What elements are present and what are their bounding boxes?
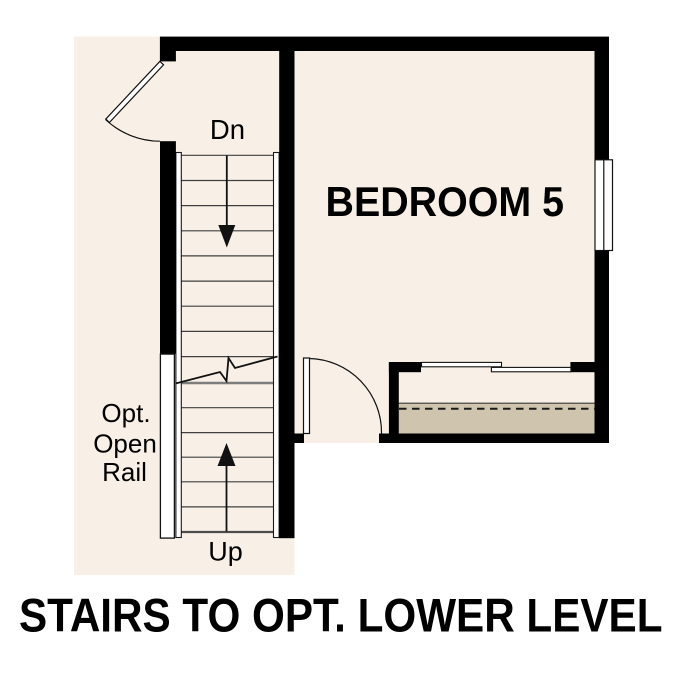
- svg-text:Opt.: Opt.: [101, 398, 150, 428]
- svg-text:STAIRS TO OPT. LOWER LEVEL: STAIRS TO OPT. LOWER LEVEL: [19, 588, 663, 641]
- svg-text:BEDROOM 5: BEDROOM 5: [326, 178, 565, 225]
- svg-text:Rail: Rail: [102, 457, 147, 487]
- svg-text:Up: Up: [208, 537, 243, 567]
- svg-text:Open: Open: [93, 428, 157, 458]
- svg-text:Dn: Dn: [210, 114, 245, 145]
